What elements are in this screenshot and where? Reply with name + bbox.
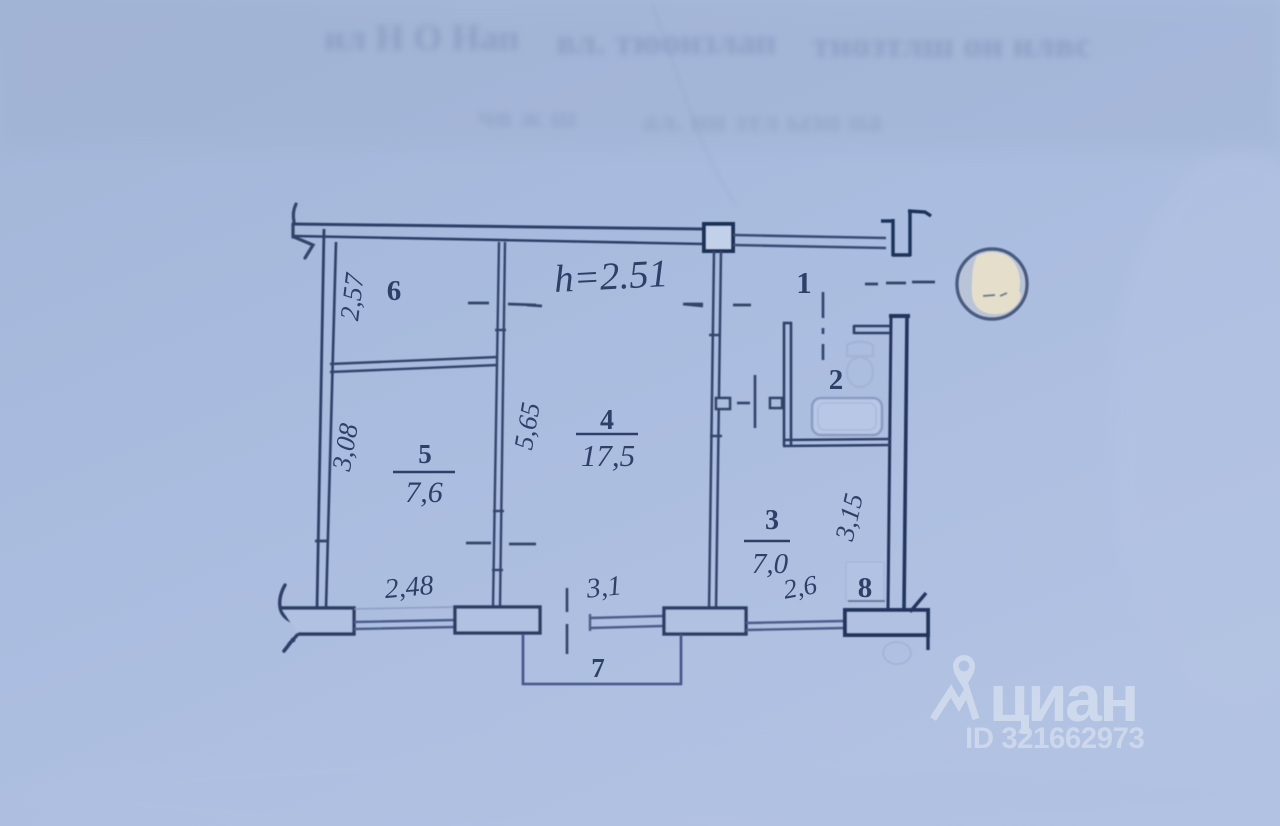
svg-text:3,1: 3,1	[584, 570, 623, 605]
svg-text:4: 4	[600, 405, 614, 436]
svg-text:2,6: 2,6	[781, 569, 820, 604]
svg-text:1: 1	[796, 265, 812, 300]
svg-text:3: 3	[765, 505, 779, 536]
svg-text:ID 321662973: ID 321662973	[965, 722, 1144, 755]
svg-text:2,57: 2,57	[334, 270, 370, 322]
svg-text:8: 8	[858, 572, 873, 604]
svg-text:5: 5	[418, 439, 432, 469]
svg-text:тнозтлш он нлвс: тнозтлш он нлвс	[812, 25, 1091, 66]
svg-text:7: 7	[591, 653, 605, 683]
svg-text:2,48: 2,48	[383, 570, 435, 605]
svg-text:ал. нн зтл ызп па: ал. нн зтл ызп па	[642, 103, 882, 138]
svg-text:h=2.51: h=2.51	[553, 252, 669, 301]
svg-text:17,5: 17,5	[581, 438, 635, 473]
svg-text:чв ж ш: чв ж ш	[478, 99, 576, 134]
svg-text:ил Н О Нап: ил Н О Нап	[324, 18, 520, 59]
svg-text:6: 6	[387, 275, 402, 307]
svg-text:7,6: 7,6	[405, 476, 443, 509]
svg-text:2: 2	[829, 364, 844, 396]
